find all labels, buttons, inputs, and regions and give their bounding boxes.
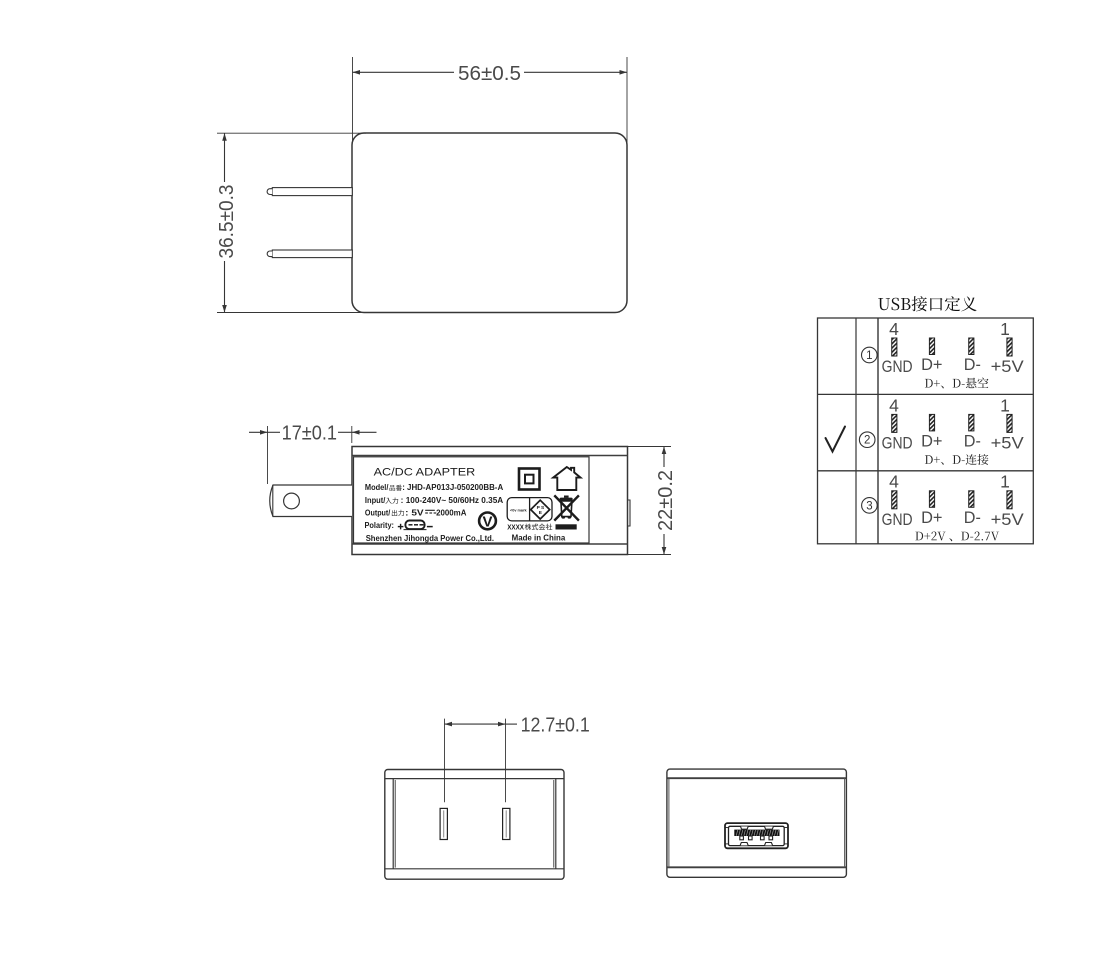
svg-text:12.7±0.1: 12.7±0.1: [521, 714, 590, 736]
svg-text:D+: D+: [921, 433, 942, 451]
svg-text:17±0.1: 17±0.1: [282, 423, 337, 445]
svg-text:2000mA: 2000mA: [436, 509, 467, 518]
svg-text:2: 2: [864, 435, 870, 447]
svg-text:D-: D-: [964, 509, 981, 527]
svg-text:Shenzhen Jihongda Power Co.,Lt: Shenzhen Jihongda Power Co.,Ltd.: [366, 534, 494, 543]
svg-text:<0v mark: <0v mark: [510, 509, 527, 513]
svg-text:V: V: [482, 514, 492, 531]
svg-text:4: 4: [889, 319, 899, 339]
svg-text:1: 1: [1000, 395, 1010, 415]
svg-text:D+: D+: [921, 356, 942, 374]
svg-text:1: 1: [1000, 319, 1010, 339]
svg-text:+5V: +5V: [991, 511, 1024, 529]
svg-text:Model/: Model/: [365, 483, 389, 492]
svg-text:3: 3: [866, 500, 872, 512]
svg-text:4: 4: [889, 472, 899, 492]
svg-text:Input/: Input/: [365, 496, 386, 505]
svg-text:Output/: Output/: [365, 509, 391, 518]
svg-text:+5V: +5V: [991, 358, 1024, 376]
svg-text:56±0.5: 56±0.5: [458, 63, 521, 85]
svg-text:GND: GND: [882, 358, 913, 376]
svg-text:GND: GND: [882, 511, 913, 529]
svg-text:36.5±0.3: 36.5±0.3: [216, 185, 238, 259]
svg-text:+5V: +5V: [991, 434, 1024, 452]
svg-text:: JHD-AP013J-050200BB-A: : JHD-AP013J-050200BB-A: [402, 483, 503, 492]
svg-text:XXXX: XXXX: [507, 523, 524, 532]
svg-text:: 5V: : 5V: [405, 509, 424, 518]
svg-text:D-: D-: [964, 433, 981, 451]
svg-text:22±0.2: 22±0.2: [655, 470, 677, 531]
svg-text:P S: P S: [537, 505, 545, 511]
svg-text:AC/DC ADAPTER: AC/DC ADAPTER: [374, 466, 476, 478]
svg-text:: 100-240V~ 50/60Hz 0.35A: : 100-240V~ 50/60Hz 0.35A: [401, 496, 504, 505]
svg-text:D+: D+: [921, 509, 942, 527]
svg-text:Polarity:: Polarity:: [365, 521, 395, 530]
svg-text:1: 1: [1000, 472, 1010, 492]
svg-text:Made in China: Made in China: [512, 533, 566, 543]
svg-text:GND: GND: [882, 434, 913, 452]
svg-text:1: 1: [866, 350, 872, 362]
svg-text:D-: D-: [964, 356, 981, 374]
svg-text:4: 4: [889, 395, 899, 415]
